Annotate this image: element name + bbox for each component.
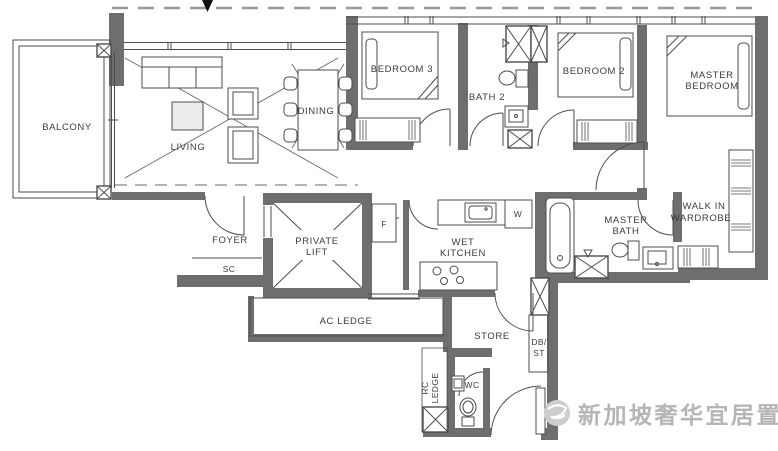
room-label-store: STORE bbox=[474, 331, 510, 342]
pillow bbox=[620, 38, 631, 90]
north-arrow-icon bbox=[202, 0, 213, 12]
room-label-private-lift-1: PRIVATE bbox=[295, 236, 338, 247]
dining-chair bbox=[284, 77, 297, 90]
store-door bbox=[495, 293, 533, 331]
wardrobe bbox=[355, 118, 420, 142]
entrance-door-leaf bbox=[536, 388, 545, 434]
room-balcony bbox=[13, 40, 111, 199]
label-db-st-2: ST bbox=[533, 348, 545, 358]
label-sc: SC bbox=[223, 264, 236, 274]
bath2-door bbox=[470, 113, 503, 146]
floor-plan-drawing: BALCONY LIVING DINING BEDROOM 3 BATH 2 B… bbox=[0, 0, 778, 451]
roof-outline bbox=[112, 0, 756, 12]
watermark-text: 新加坡奢华宜居置业 bbox=[578, 402, 778, 428]
bedroom2-furniture bbox=[558, 33, 637, 143]
label-fridge: F bbox=[381, 219, 387, 229]
toilet-tank bbox=[516, 70, 528, 87]
globe-logo-icon bbox=[544, 400, 570, 426]
master-bath-fixtures bbox=[546, 198, 673, 273]
room-label-bedroom2: BEDROOM 2 bbox=[563, 66, 625, 77]
dining-chair bbox=[284, 129, 297, 142]
label-washer: W bbox=[514, 209, 522, 219]
foyer-door bbox=[205, 196, 244, 235]
room-label-bedroom3: BEDROOM 3 bbox=[371, 64, 433, 75]
room-label-walk-in-wardrobe-2: WARDROBE bbox=[671, 213, 731, 224]
room-label-rc-ledge-1: RC bbox=[420, 381, 430, 394]
room-label-wet-kitchen-1: WET bbox=[452, 237, 475, 248]
room-label-balcony: BALCONY bbox=[42, 122, 92, 133]
toilet-base bbox=[462, 417, 474, 426]
room-label-dining: DINING bbox=[298, 106, 335, 117]
room-label-foyer: FOYER bbox=[212, 235, 248, 246]
label-db-st-1: DB/ bbox=[531, 337, 547, 347]
vanity bbox=[505, 106, 528, 127]
room-label-rc-ledge-2: LEDGE bbox=[430, 373, 440, 404]
watermark: 新加坡奢华宜居置业 bbox=[544, 400, 778, 428]
bedroom2-door bbox=[538, 110, 574, 146]
room-label-private-lift-2: LIFT bbox=[306, 247, 328, 258]
room-label-master-bath-1: MASTER bbox=[604, 215, 647, 226]
room-label-walk-in-wardrobe-1: WALK IN bbox=[683, 201, 726, 212]
toilet-bowl bbox=[499, 71, 515, 85]
counter bbox=[420, 262, 497, 290]
room-label-master-bedroom-2: BEDROOM bbox=[685, 81, 738, 92]
bedroom3-furniture bbox=[355, 32, 438, 142]
sofa bbox=[142, 57, 222, 88]
toilet-bowl bbox=[612, 243, 628, 257]
room-label-bath2: BATH 2 bbox=[469, 92, 505, 103]
dining-chair bbox=[339, 129, 352, 142]
pillow bbox=[738, 43, 749, 109]
dining-chair bbox=[339, 103, 352, 116]
wardrobe bbox=[729, 150, 753, 252]
room-label-living: LIVING bbox=[171, 142, 206, 153]
kitchen-door bbox=[409, 200, 438, 229]
room-label-master-bedroom-1: MASTER bbox=[690, 70, 733, 81]
dining-chair bbox=[339, 77, 352, 90]
dining-chair bbox=[284, 103, 297, 116]
wardrobe bbox=[577, 120, 637, 143]
coffee-table bbox=[172, 102, 203, 130]
room-label-wet-kitchen-2: KITCHEN bbox=[440, 248, 486, 259]
room-label-master-bath-2: BATH bbox=[612, 226, 639, 237]
entrance-door bbox=[491, 386, 541, 435]
floor-plan: BALCONY LIVING DINING BEDROOM 3 BATH 2 B… bbox=[0, 0, 778, 451]
room-label-wc: WC bbox=[465, 380, 480, 390]
room-label-ac-ledge: AC LEDGE bbox=[320, 316, 373, 327]
toilet-tank bbox=[628, 241, 639, 260]
